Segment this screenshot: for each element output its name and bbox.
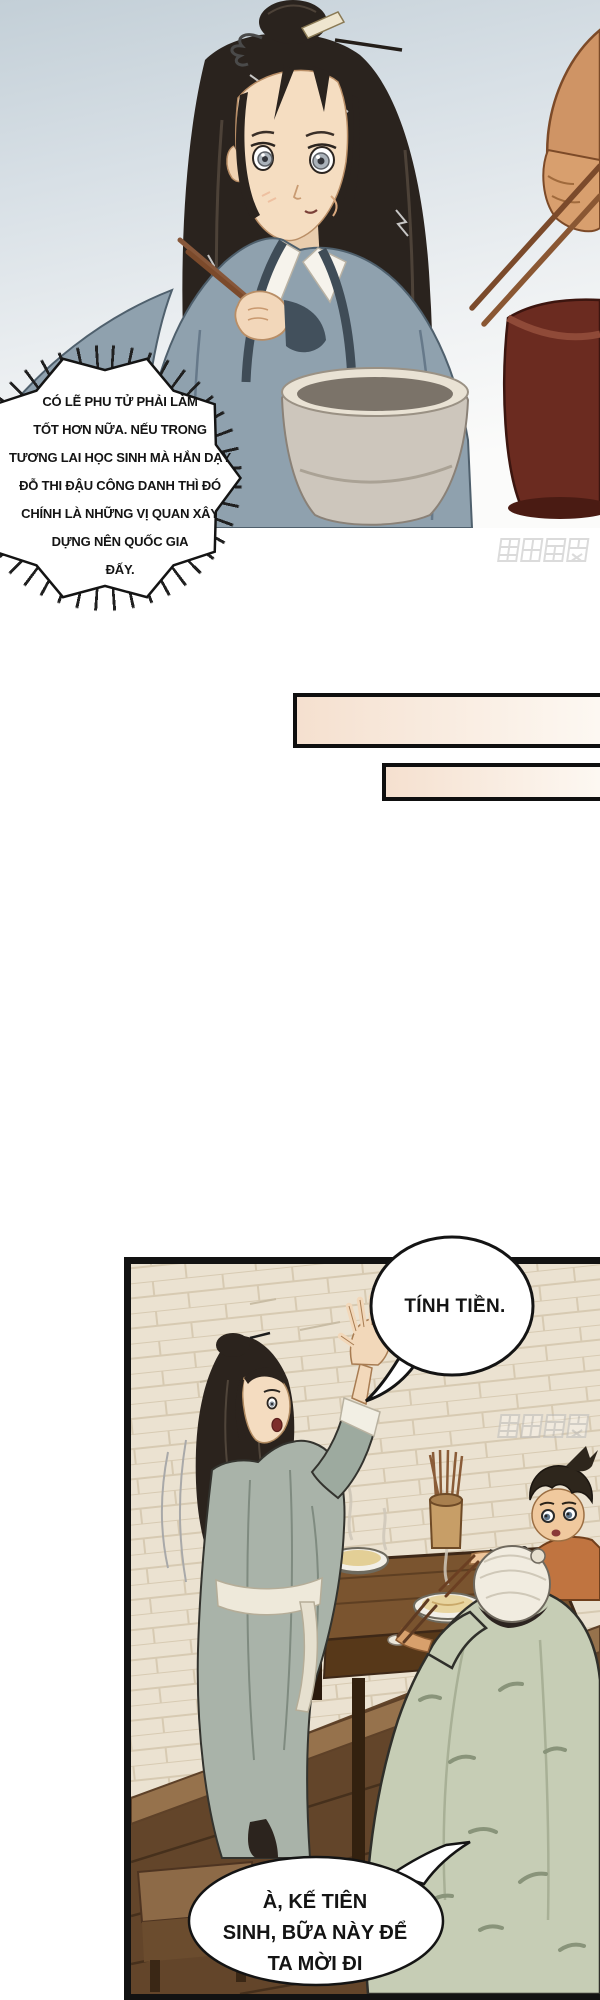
transition-bar-2 xyxy=(382,763,600,801)
open-mouth xyxy=(272,1419,282,1432)
tencent-comics-watermark xyxy=(494,534,590,568)
tinh-tien-bubble xyxy=(360,1232,550,1412)
tencent-comics-watermark-2 xyxy=(494,1410,590,1444)
comic-page: CÓ LẼ PHU TỬ PHẢI LÀM TỐT HƠN NỮA. NẾU T… xyxy=(0,0,600,2000)
gray-bowl xyxy=(282,368,468,525)
hair-bun-2 xyxy=(216,1333,250,1357)
burst-bubble-text: CÓ LẼ PHU TỬ PHẢI LÀM TỐT HƠN NỮA. NẾU T… xyxy=(0,388,240,584)
hand xyxy=(235,291,288,339)
treat-bubble-text: À, KẾ TIÊN SINH, BỮA NÀY ĐỂ TA MỜI ĐI xyxy=(185,1887,445,1980)
tinh-tien-text: TÍNH TIỀN. xyxy=(355,1296,555,1318)
transition-bar-1 xyxy=(293,693,600,748)
red-bowl xyxy=(504,300,600,519)
